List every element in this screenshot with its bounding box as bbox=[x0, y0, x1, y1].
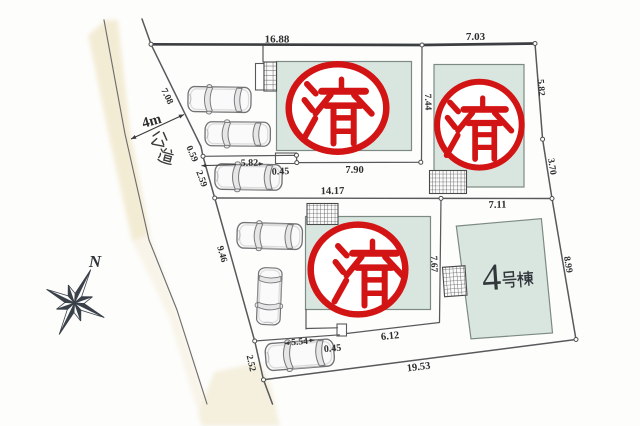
svg-text:5.54: 5.54 bbox=[291, 337, 309, 348]
svg-text:7.44: 7.44 bbox=[422, 94, 433, 111]
svg-text:N: N bbox=[88, 252, 102, 271]
svg-text:16.88: 16.88 bbox=[265, 34, 290, 46]
svg-text:4m: 4m bbox=[140, 111, 163, 132]
svg-text:7.11: 7.11 bbox=[489, 200, 507, 211]
svg-text:9.46: 9.46 bbox=[214, 245, 228, 264]
svg-text:8.99: 8.99 bbox=[561, 256, 574, 274]
svg-text:2.59: 2.59 bbox=[193, 169, 208, 188]
svg-text:19.53: 19.53 bbox=[406, 361, 431, 375]
svg-text:0.59: 0.59 bbox=[183, 144, 199, 163]
svg-text:5.82: 5.82 bbox=[535, 79, 546, 97]
svg-text:7.90: 7.90 bbox=[345, 165, 363, 176]
svg-text:4: 4 bbox=[481, 256, 503, 299]
svg-text:7.67: 7.67 bbox=[428, 256, 439, 273]
svg-text:0.45: 0.45 bbox=[323, 343, 341, 355]
svg-text:7.08: 7.08 bbox=[158, 87, 174, 107]
svg-text:7.03: 7.03 bbox=[466, 31, 486, 43]
svg-text:6.12: 6.12 bbox=[380, 330, 399, 343]
svg-text:5.82: 5.82 bbox=[241, 158, 259, 169]
svg-text:14.17: 14.17 bbox=[321, 186, 345, 197]
svg-text:3.70: 3.70 bbox=[545, 158, 558, 176]
svg-text:0.45: 0.45 bbox=[272, 166, 290, 178]
